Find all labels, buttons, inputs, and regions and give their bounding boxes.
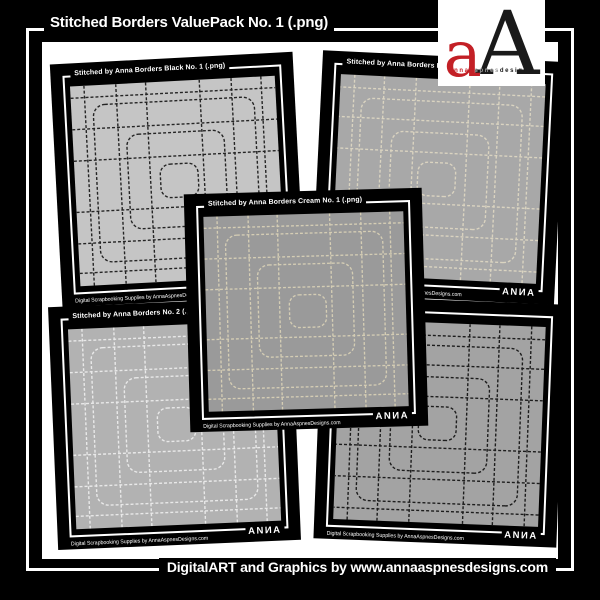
- footer-credit: DigitalART and Graphics by www.annaaspne…: [159, 558, 556, 578]
- anna-watermark: ANИA: [501, 529, 541, 542]
- preview-card-borders-cream-no1: Stitched by Anna Borders Cream No. 1 (.p…: [184, 188, 429, 433]
- tagline-designs: designs: [500, 68, 534, 74]
- product-promo-sheet: Stitched Borders ValuePack No. 1 (.png) …: [0, 0, 600, 600]
- anna-watermark: ANИA: [245, 524, 285, 537]
- stitched-border-art: [203, 211, 408, 412]
- card-credit: Digital Scrapbooking Supplies by AnnaAsp…: [203, 420, 341, 430]
- page-title: Stitched Borders ValuePack No. 1 (.png): [44, 13, 334, 34]
- anna-watermark: ANИA: [499, 286, 539, 299]
- aA-logo-mark: a A: [444, 0, 540, 66]
- logo-lowercase-a: a: [444, 23, 482, 87]
- brand-logo: a A annaaspnesdesigns: [438, 0, 545, 86]
- anna-watermark: ANИA: [372, 410, 412, 422]
- logo-uppercase-A: A: [476, 0, 540, 88]
